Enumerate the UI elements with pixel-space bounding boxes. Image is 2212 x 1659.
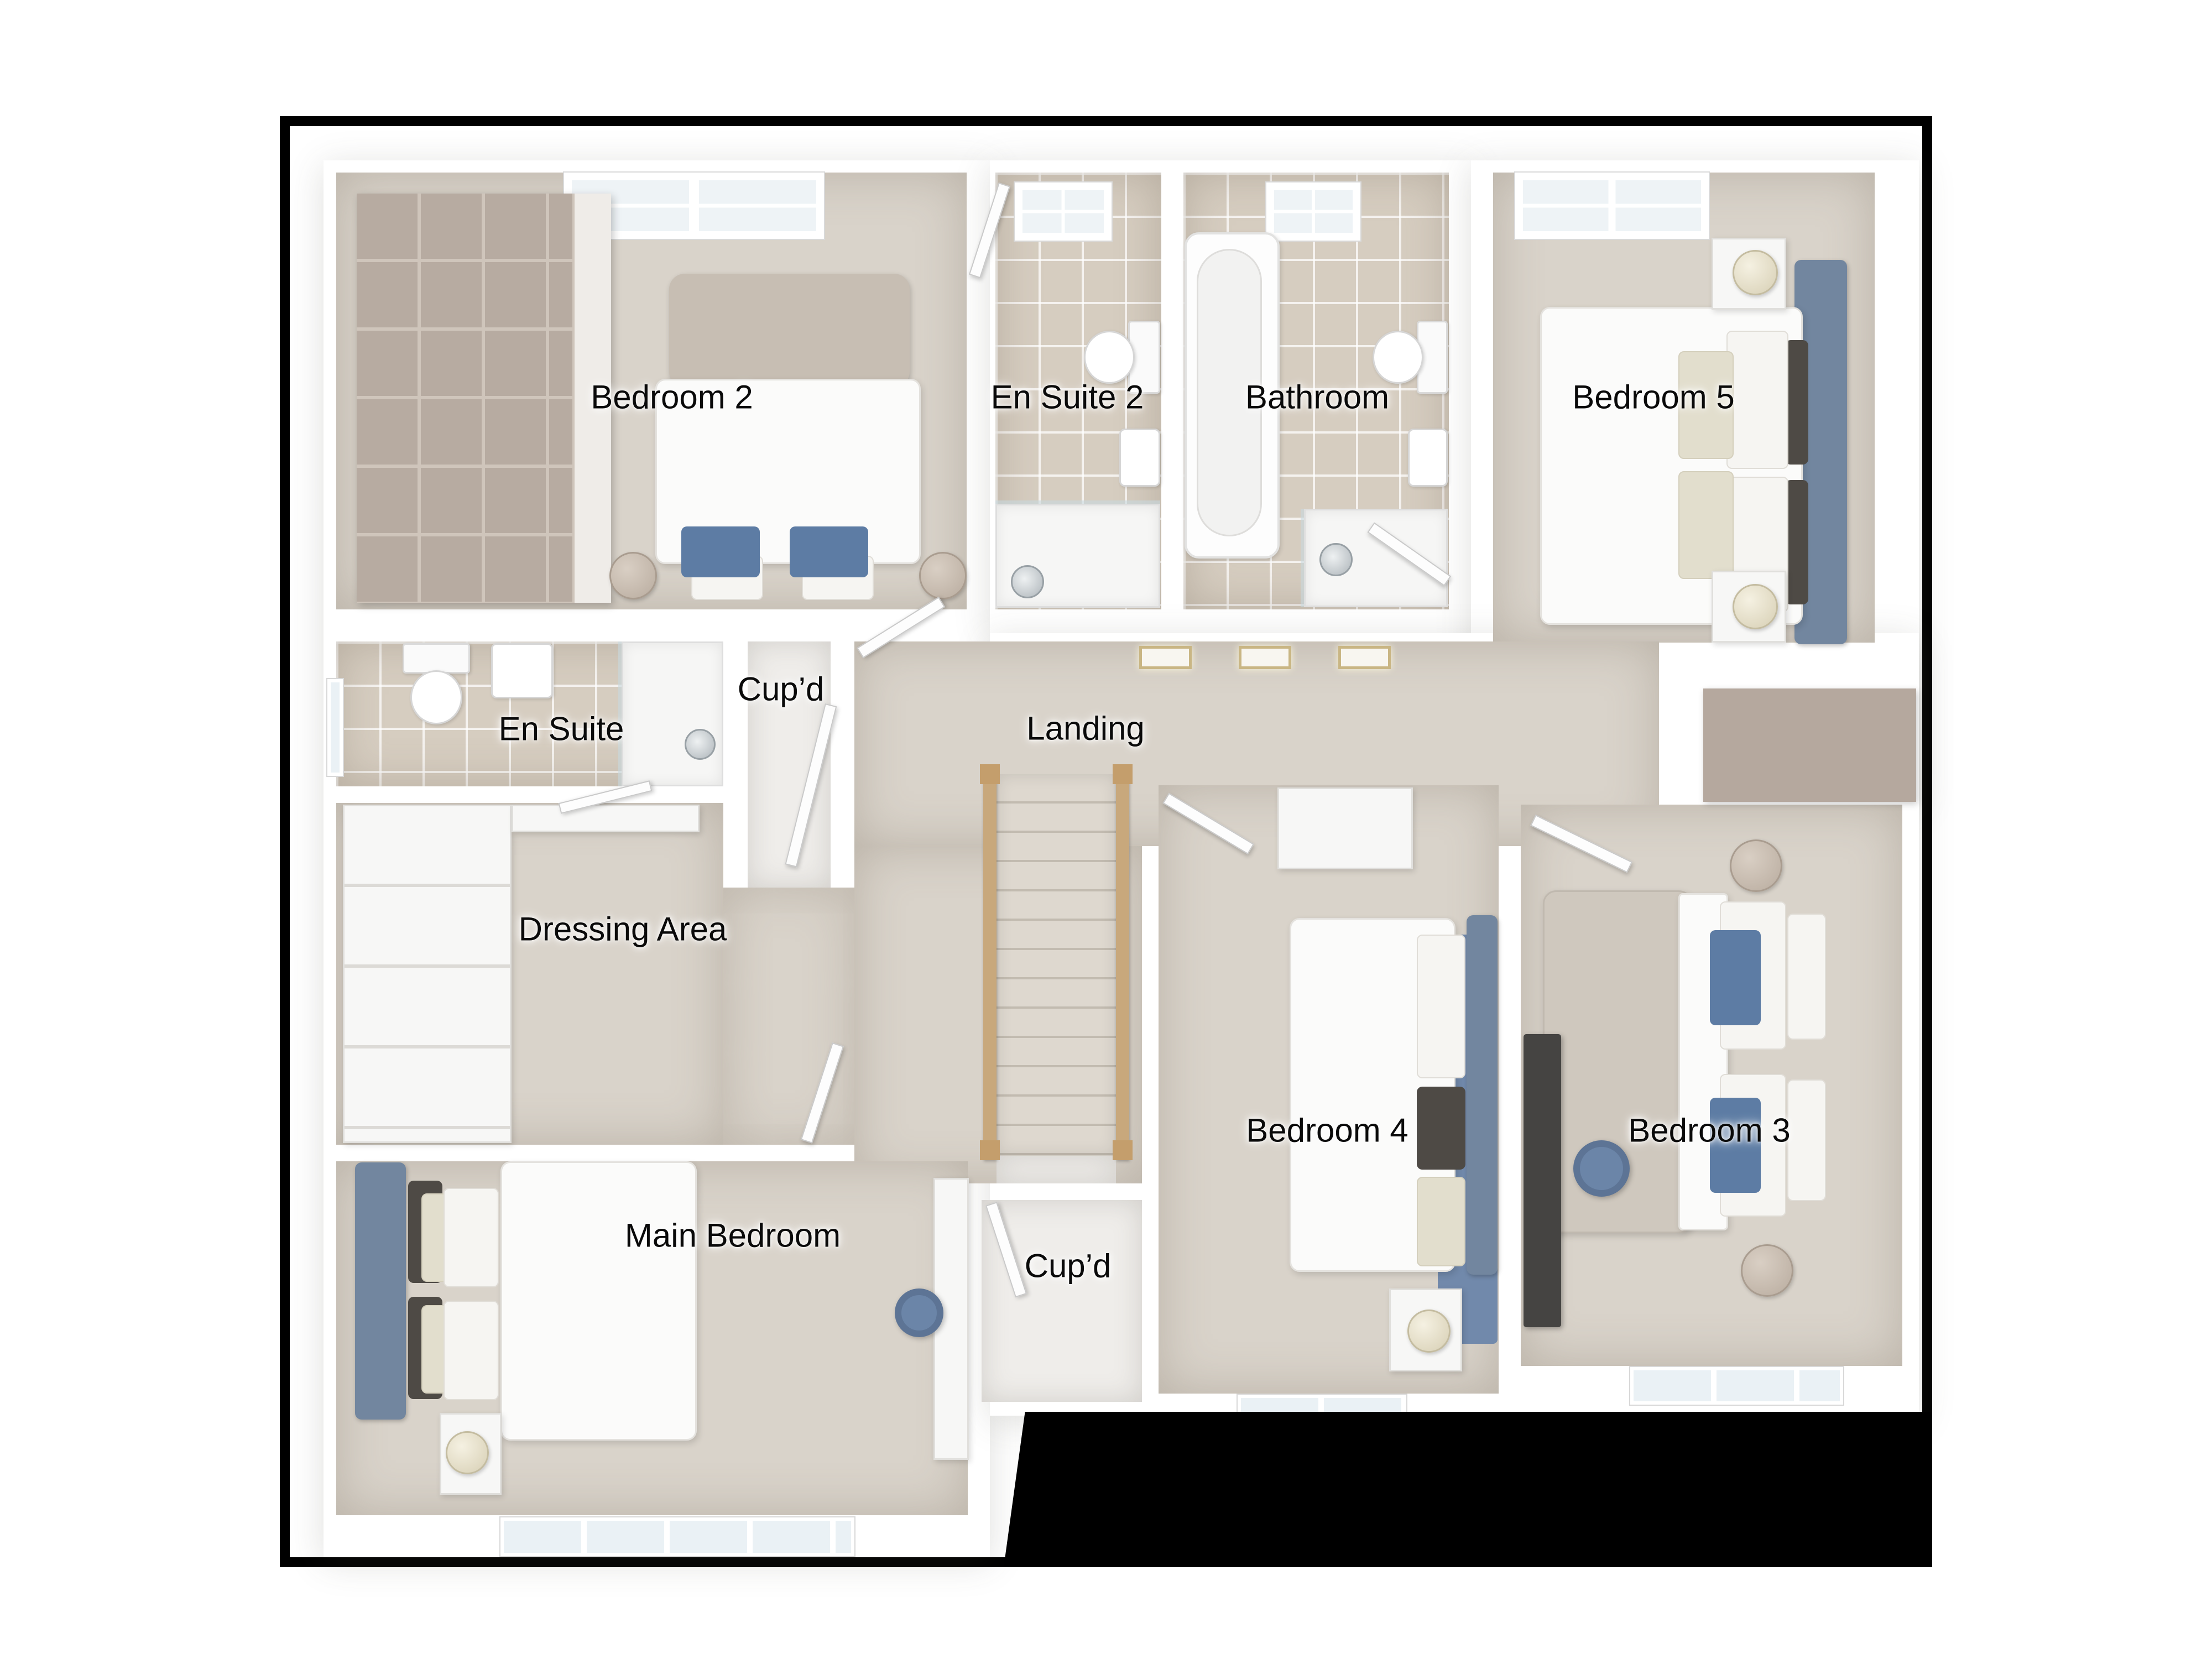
en-suite-2-shower-head bbox=[1011, 565, 1044, 598]
main-bedroom-bed-headboard bbox=[355, 1162, 406, 1420]
bedroom-3-wardrobe bbox=[1703, 688, 1916, 802]
landing-corridor-to-main-bedroom bbox=[723, 888, 854, 1145]
bedroom-3-pillow bbox=[1787, 1079, 1826, 1201]
bedroom-5-skylight-window bbox=[1515, 173, 1709, 239]
room-label-bedroom-5: Bedroom 5 bbox=[1572, 378, 1735, 416]
landing-ceiling-light bbox=[1139, 646, 1192, 669]
main-bedroom-pillow bbox=[444, 1188, 499, 1287]
room-label-main-bedroom: Main Bedroom bbox=[625, 1217, 841, 1255]
dressing-area-wardrobe bbox=[343, 805, 512, 1143]
en-suite-shower-head bbox=[685, 729, 716, 760]
main-bedroom-bedside-lamp bbox=[446, 1431, 489, 1474]
room-label-landing: Landing bbox=[1026, 709, 1145, 748]
room-label-bedroom-3: Bedroom 3 bbox=[1628, 1112, 1791, 1150]
bedroom-3-pillow bbox=[1710, 930, 1761, 1025]
staircase-left-handrail bbox=[983, 768, 997, 1160]
en-suite-2-skylight-window bbox=[1015, 182, 1112, 241]
staircase-newel-post bbox=[980, 764, 1000, 784]
landing-ceiling-light bbox=[1239, 646, 1291, 669]
bedroom-3-bedside-lamp bbox=[1730, 839, 1782, 892]
bedroom-2-pillow bbox=[681, 526, 760, 577]
dressing-area-shelf bbox=[512, 805, 700, 832]
staircase-treads bbox=[997, 774, 1116, 1156]
bedroom-5-bedside-lamp bbox=[1733, 584, 1778, 629]
main-bedroom-window bbox=[500, 1517, 854, 1556]
plan-corner-cutout bbox=[1004, 1412, 1932, 1567]
room-label-bedroom-4: Bedroom 4 bbox=[1246, 1112, 1408, 1150]
en-suite-shower-tray bbox=[622, 641, 723, 786]
staircase-lower-void bbox=[997, 1156, 1116, 1183]
room-label-en-suite: En Suite bbox=[499, 710, 624, 748]
bathroom-shower-head bbox=[1319, 543, 1353, 576]
bedroom-5-pillow bbox=[1678, 471, 1734, 579]
bedroom-2-bedside-lamp bbox=[609, 552, 657, 599]
bathroom-sink bbox=[1408, 429, 1448, 487]
floor-plan-canvas: Bedroom 2 En Suite 2 Bathroom Bedroom 5 … bbox=[0, 0, 2212, 1659]
room-label-cupboard-bottom: Cup’d bbox=[1025, 1247, 1112, 1285]
room-label-bathroom: Bathroom bbox=[1245, 378, 1389, 416]
bedroom-4-wardrobe bbox=[1277, 787, 1413, 869]
bedroom-5-bedside-lamp bbox=[1733, 250, 1778, 295]
en-suite-2-toilet bbox=[1084, 331, 1135, 384]
bedroom-3-bedside-lamp bbox=[1741, 1244, 1793, 1297]
room-label-cupboard-top: Cup’d bbox=[738, 670, 825, 708]
en-suite-sink bbox=[491, 643, 553, 698]
bedroom-4-pillow bbox=[1417, 935, 1465, 1078]
bathroom-toilet bbox=[1373, 331, 1423, 384]
en-suite-window bbox=[327, 679, 343, 776]
bedroom-2-bed-footboard bbox=[669, 274, 910, 387]
staircase-newel-post bbox=[1113, 764, 1133, 784]
room-label-bedroom-2: Bedroom 2 bbox=[591, 378, 753, 416]
bedroom-5-pillow bbox=[1785, 340, 1808, 465]
bedroom-3-desk bbox=[1524, 1034, 1561, 1327]
bedroom-2-bedside-lamp bbox=[919, 552, 967, 599]
bedroom-5-pillow bbox=[1785, 480, 1808, 604]
bedroom-3-pillow bbox=[1787, 914, 1826, 1040]
landing-ceiling-light bbox=[1338, 646, 1391, 669]
bedroom-4-bedside-lamp bbox=[1407, 1310, 1451, 1353]
bedroom-4-pillow bbox=[1417, 1087, 1465, 1170]
main-bedroom-pillow bbox=[444, 1301, 499, 1400]
en-suite-toilet bbox=[410, 670, 462, 724]
main-bedroom-chair bbox=[895, 1288, 943, 1337]
bedroom-2-pillow bbox=[790, 526, 868, 577]
bedroom-4-pillow bbox=[1417, 1177, 1465, 1266]
room-label-en-suite-2: En Suite 2 bbox=[991, 378, 1144, 416]
bedroom-5-pillow bbox=[1726, 331, 1788, 469]
en-suite-toilet-cistern bbox=[403, 643, 470, 674]
staircase-right-handrail bbox=[1116, 768, 1129, 1160]
bedroom-3-window bbox=[1630, 1367, 1843, 1405]
en-suite-2-sink bbox=[1119, 429, 1160, 487]
bedroom-4-bed-headboard bbox=[1467, 915, 1498, 1275]
bathroom-skylight-window bbox=[1266, 182, 1360, 241]
staircase-newel-post bbox=[1113, 1140, 1133, 1160]
bedroom-3-chair bbox=[1573, 1140, 1630, 1197]
staircase-newel-post bbox=[980, 1140, 1000, 1160]
main-bedroom-bed-duvet bbox=[500, 1161, 697, 1441]
room-label-dressing-area: Dressing Area bbox=[519, 910, 727, 948]
